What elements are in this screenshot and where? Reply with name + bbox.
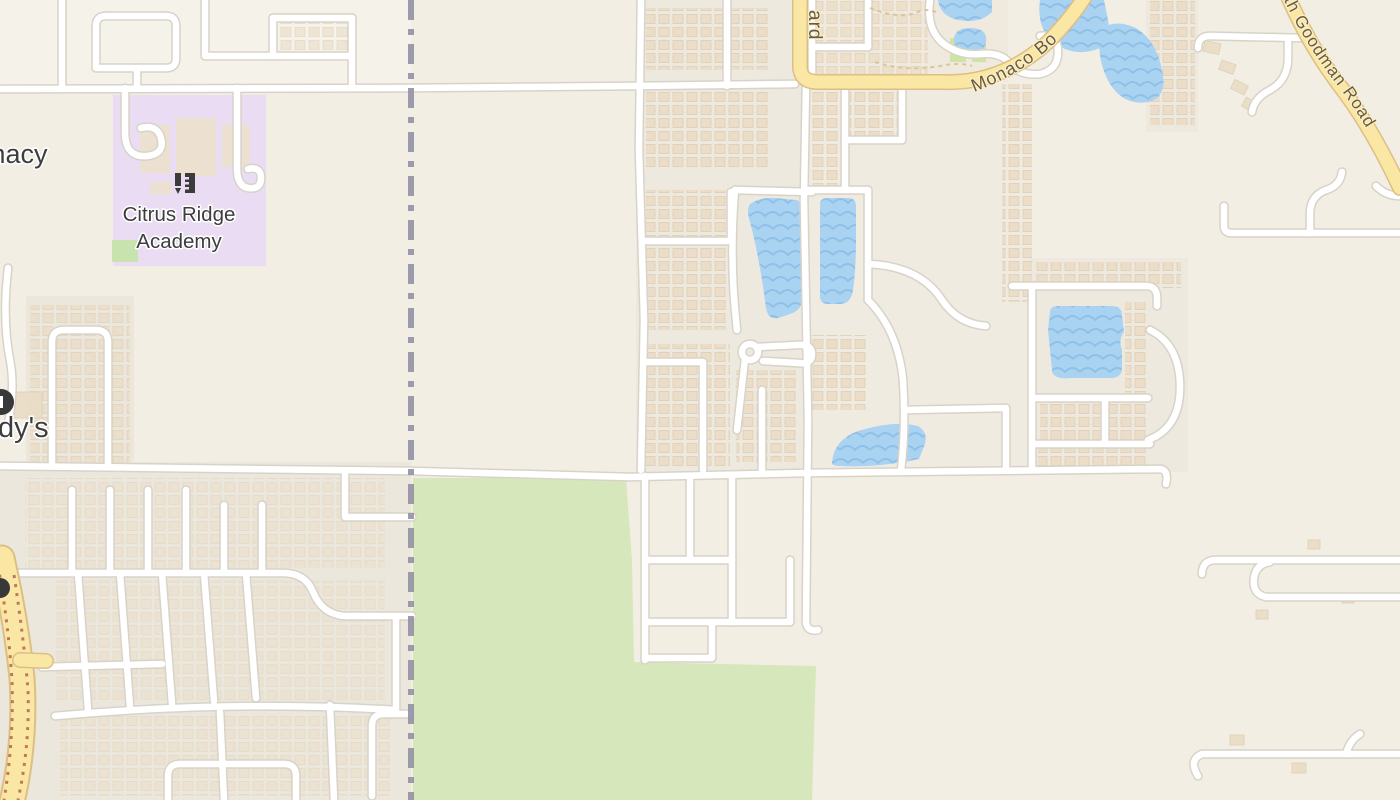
school-icon[interactable] [175,173,195,194]
map-canvas[interactable]: macy Citrus Ridge Academy dy's ard Monac… [0,0,1400,800]
lake [1048,306,1124,378]
road-label-vertical: ard [804,10,825,40]
road-label-goodman: th Goodman Road [1280,0,1380,131]
restaurant-label: dy's [0,412,49,444]
park-area [413,478,816,800]
pharmacy-label: macy [0,139,48,169]
school-label-line2: Academy [136,230,222,253]
map-svg: macy Citrus Ridge Academy dy's ard Monac… [0,0,1400,800]
school-label-line1: Citrus Ridge [123,203,236,226]
lake [820,198,856,304]
